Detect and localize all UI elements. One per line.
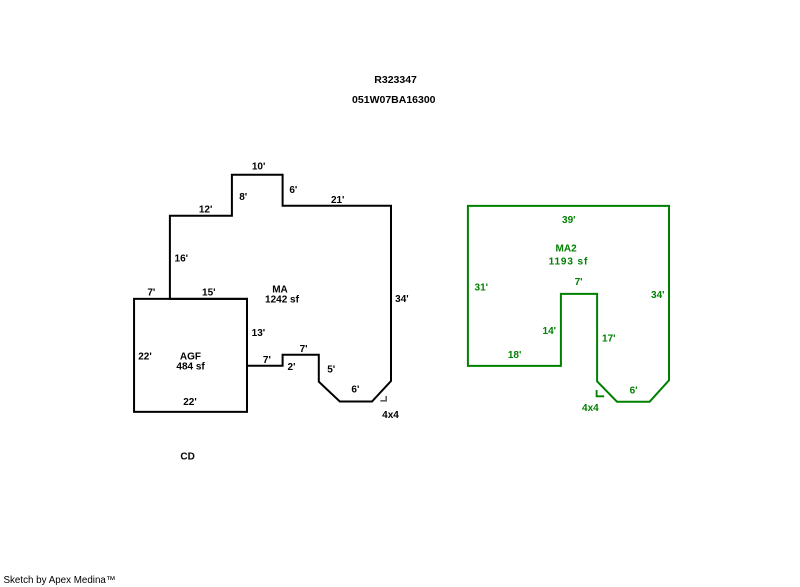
svg-text:CD: CD — [180, 452, 194, 463]
svg-text:7': 7' — [575, 277, 583, 288]
svg-text:051W07BA16300: 051W07BA16300 — [352, 94, 436, 106]
svg-text:1193 sf: 1193 sf — [549, 256, 589, 267]
svg-text:13': 13' — [252, 328, 266, 339]
svg-text:5': 5' — [327, 365, 335, 376]
svg-text:10': 10' — [252, 162, 266, 173]
svg-text:8': 8' — [239, 192, 247, 203]
svg-text:484 sf: 484 sf — [176, 361, 205, 372]
svg-text:MA2: MA2 — [556, 243, 578, 254]
svg-text:4x4: 4x4 — [582, 403, 599, 414]
svg-text:7': 7' — [147, 288, 155, 299]
svg-text:39': 39' — [562, 215, 576, 226]
svg-text:22': 22' — [138, 351, 152, 362]
svg-text:6': 6' — [351, 384, 359, 395]
svg-text:12': 12' — [199, 204, 213, 215]
svg-text:4x4: 4x4 — [382, 410, 399, 421]
svg-text:34': 34' — [651, 290, 665, 301]
svg-text:14': 14' — [543, 326, 557, 337]
svg-text:31': 31' — [475, 283, 489, 294]
svg-text:1242 sf: 1242 sf — [265, 295, 300, 306]
svg-text:2': 2' — [288, 362, 296, 373]
svg-text:21': 21' — [331, 195, 345, 206]
svg-text:Sketch by Apex Medina™: Sketch by Apex Medina™ — [4, 575, 116, 586]
svg-text:7': 7' — [300, 344, 308, 355]
svg-text:22': 22' — [183, 397, 197, 408]
svg-text:34': 34' — [395, 294, 409, 305]
svg-text:17': 17' — [602, 334, 616, 345]
svg-text:6': 6' — [630, 386, 638, 397]
svg-text:7': 7' — [263, 355, 271, 366]
svg-text:16': 16' — [175, 254, 189, 265]
svg-text:18': 18' — [508, 350, 522, 361]
svg-text:6': 6' — [289, 185, 297, 196]
svg-text:15': 15' — [202, 288, 216, 299]
svg-text:R323347: R323347 — [374, 74, 417, 86]
